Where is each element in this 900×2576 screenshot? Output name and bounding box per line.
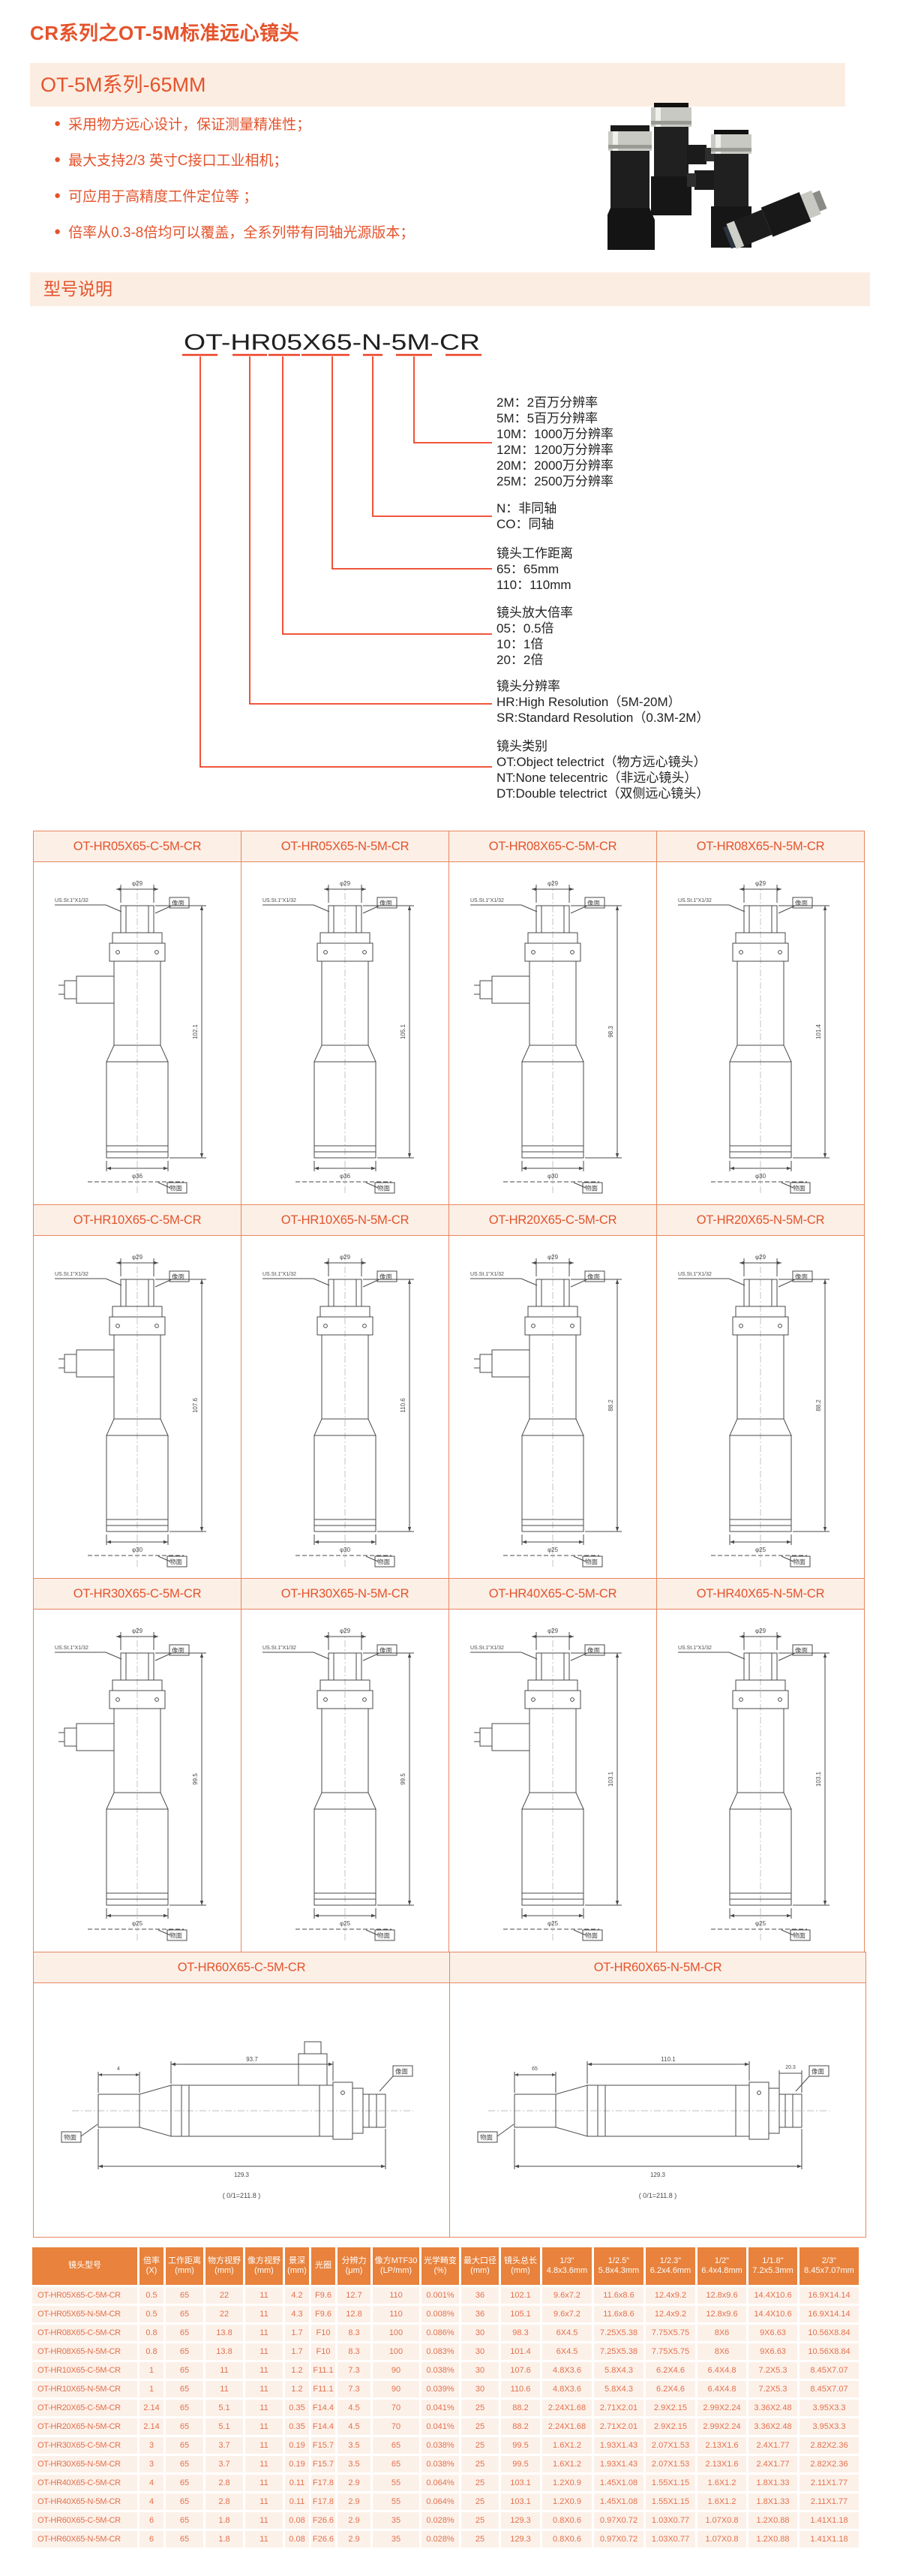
drawing-cell: φ29 US.St.1"X1/32 像面 φ30 101.4 物面 — [656, 861, 865, 1205]
spec-value-cell: 1.6X1.2 — [697, 2493, 746, 2510]
spec-header-cell: 1/3" 4.8x3.6mm — [542, 2247, 592, 2285]
spec-value-cell: 6.4X4.8 — [697, 2362, 746, 2379]
spec-value-cell: 65 — [373, 2437, 419, 2454]
spec-value-cell: 88.2 — [501, 2400, 540, 2416]
svg-text:US.St.1"X1/32: US.St.1"X1/32 — [262, 1646, 296, 1651]
spec-value-cell: 25 — [461, 2418, 499, 2435]
svg-text:φ29: φ29 — [755, 1628, 766, 1634]
spec-header-cell: 分辨力 (μm) — [337, 2247, 370, 2285]
spec-value-cell: 1.2X0.9 — [542, 2475, 592, 2491]
svg-text:φ29: φ29 — [547, 1254, 559, 1261]
spec-value-cell: 90 — [373, 2362, 419, 2379]
spec-value-cell: 25 — [461, 2437, 499, 2454]
drawing-title: OT-HR05X65-C-5M-CR — [33, 831, 241, 862]
spec-value-cell: 0.97X0.72 — [594, 2512, 643, 2529]
spec-value-cell: 1.2 — [285, 2362, 309, 2379]
spec-value-cell: 7.2X5.3 — [748, 2362, 797, 2379]
spec-value-cell: 10.56X8.84 — [799, 2343, 859, 2360]
model-callout-group: 镜头类别OT:Object telectrict（物方远心镜头）NT:None … — [496, 738, 709, 801]
lens-drawing: φ29 US.St.1"X1/32 像面 φ25 103.1 物面 — [449, 1610, 656, 1952]
feature-item: ●倍率从0.3-8倍均可以覆盖，全系列带有同轴光源版本； — [54, 213, 414, 249]
drawing-cell: φ29 US.St.1"X1/32 像面 φ25 99.5 物面 — [241, 1609, 449, 1952]
lens-drawing: φ29 US.St.1"X1/32 像面 φ25 103.1 物面 — [657, 1610, 864, 1952]
drawing-title-row: OT-HR05X65-C-5M-CROT-HR05X65-N-5M-CROT-H… — [33, 831, 868, 862]
spec-value-cell: 65 — [166, 2287, 203, 2304]
spec-value-cell: 65 — [166, 2362, 203, 2379]
spec-value-cell: 30 — [461, 2325, 499, 2341]
spec-value-cell: 7.25X5.38 — [594, 2343, 643, 2360]
callout-line: CO：同轴 — [496, 516, 556, 532]
spec-value-cell: 102.1 — [501, 2287, 540, 2304]
spec-value-cell: 65 — [166, 2418, 203, 2435]
svg-text:φ30: φ30 — [755, 1173, 766, 1180]
datasheet-page: CR系列之OT-5M标准远心镜头 OT-5M系列-65MM ●采用物方远心设计，… — [0, 0, 900, 2576]
spec-value-cell: 12.4x9.2 — [646, 2287, 695, 2304]
spec-value-cell: F15.7 — [311, 2456, 335, 2472]
svg-text:物面: 物面 — [480, 2134, 493, 2142]
svg-text:物面: 物面 — [377, 1932, 391, 1940]
svg-text:像面: 像面 — [379, 900, 393, 907]
spec-value-cell: 1.6X1.2 — [542, 2456, 592, 2472]
svg-text:US.St.1"X1/32: US.St.1"X1/32 — [262, 1272, 296, 1277]
lens-photo-left — [607, 125, 655, 250]
svg-text:105.1: 105.1 — [400, 1023, 406, 1039]
spec-value-cell: 5.8X4.3 — [594, 2362, 643, 2379]
spec-value-cell: 65 — [166, 2512, 203, 2529]
spec-value-cell: 2.82X2.36 — [799, 2437, 859, 2454]
svg-text:US.St.1"X1/32: US.St.1"X1/32 — [678, 1272, 712, 1277]
spec-value-cell: 107.6 — [501, 2362, 540, 2379]
spec-value-cell: 65 — [166, 2381, 203, 2397]
spec-value-cell: 2.13X1.6 — [697, 2456, 746, 2472]
spec-value-cell: 1.03X0.77 — [646, 2512, 695, 2529]
svg-text:US.St.1"X1/32: US.St.1"X1/32 — [678, 898, 712, 903]
callout-line: 10：1倍 — [496, 636, 573, 652]
spec-value-cell: 11 — [245, 2400, 283, 2416]
drawing-cell: φ29 US.St.1"X1/32 像面 φ25 103.1 物面 — [448, 1609, 657, 1952]
svg-text:φ25: φ25 — [547, 1920, 559, 1927]
spec-model-cell: OT-HR20X65-C-5M-CR — [32, 2400, 137, 2416]
spec-value-cell: 2.71X2.01 — [594, 2400, 643, 2416]
drawings-grid: OT-HR05X65-C-5M-CROT-HR05X65-N-5M-CROT-H… — [33, 831, 868, 2238]
spec-value-cell: 36 — [461, 2287, 499, 2304]
spec-value-cell: 110 — [373, 2287, 419, 2304]
spec-value-cell: 11 — [245, 2362, 283, 2379]
spec-value-cell: 1.7 — [285, 2325, 309, 2341]
drawing-cell: 93.7 4 129.3 ( 0/1=211.8 ) 像面 物面 — [33, 1982, 450, 2238]
svg-text:20.3: 20.3 — [785, 2065, 796, 2070]
spec-model-cell: OT-HR10X65-N-5M-CR — [32, 2381, 137, 2397]
spec-value-cell: 0.008% — [421, 2306, 459, 2322]
spec-value-cell: 22 — [205, 2306, 243, 2322]
svg-text:物面: 物面 — [793, 1559, 806, 1566]
spec-header-cell: 最大口径 (mm) — [461, 2247, 499, 2285]
spec-value-cell: 11 — [245, 2475, 283, 2491]
spec-value-cell: 1.93X1.43 — [594, 2456, 643, 2472]
spec-value-cell: 2.71X2.01 — [594, 2418, 643, 2435]
spec-value-cell: 35 — [373, 2531, 419, 2547]
lens-drawing: φ29 US.St.1"X1/32 像面 φ36 105.1 物面 — [241, 862, 448, 1204]
spec-header-cell: 像方MTF30 (LP/mm) — [373, 2247, 419, 2285]
spec-value-cell: 1.7 — [285, 2343, 309, 2360]
spec-header-cell: 光圈 — [311, 2247, 335, 2285]
svg-text:物面: 物面 — [377, 1559, 391, 1566]
spec-value-cell: 2.9 — [337, 2512, 370, 2529]
drawing-row: φ29 US.St.1"X1/32 像面 φ25 99.5 物面 — [33, 1609, 868, 1952]
series-badge-label: OT-5M系列-65MM — [40, 74, 206, 96]
drawing-title: OT-HR08X65-N-5M-CR — [656, 831, 865, 862]
drawing-cell: φ29 US.St.1"X1/32 像面 φ36 105.1 物面 — [241, 861, 449, 1205]
svg-text:像面: 像面 — [172, 900, 185, 907]
svg-text:101.4: 101.4 — [815, 1023, 822, 1039]
drawing-cell: φ29 US.St.1"X1/32 像面 φ36 102.1 物面 — [33, 861, 241, 1205]
feature-text: 倍率从0.3-8倍均可以覆盖，全系列带有同轴光源版本； — [68, 221, 414, 242]
callout-line: 2M：2百万分辨率 — [496, 395, 613, 410]
spec-value-cell: 11 — [245, 2343, 283, 2360]
spec-value-cell: 1.2X0.88 — [748, 2512, 797, 2529]
svg-text:US.St.1"X1/32: US.St.1"X1/32 — [470, 1646, 504, 1651]
spec-value-cell: 11 — [245, 2456, 283, 2472]
svg-text:物面: 物面 — [169, 1559, 183, 1566]
spec-value-cell: 3.5 — [337, 2456, 370, 2472]
spec-value-cell: 0.086% — [421, 2325, 459, 2341]
spec-value-cell: 9.6x7.2 — [542, 2287, 592, 2304]
svg-text:像面: 像面 — [172, 1273, 185, 1281]
bullet-icon: ● — [54, 226, 61, 237]
svg-text:像面: 像面 — [795, 900, 808, 907]
callout-heading: 镜头工作距离 — [496, 546, 573, 561]
spec-model-cell: OT-HR05X65-C-5M-CR — [32, 2287, 137, 2304]
spec-value-cell: 1.8X1.33 — [748, 2475, 797, 2491]
spec-value-cell: 30 — [461, 2343, 499, 2360]
drawing-cell: 110.1 65 20.3 129.3 ( 0/1=211.8 ) 像面 物面 — [449, 1982, 866, 2238]
spec-value-cell: 2.07X1.53 — [646, 2437, 695, 2454]
svg-text:φ29: φ29 — [132, 1254, 143, 1261]
spec-header-cell: 光学畸变 (%) — [421, 2247, 459, 2285]
callout-line: 20M：2000万分辨率 — [496, 458, 613, 473]
spec-value-cell: 8X6 — [697, 2325, 746, 2341]
spec-value-cell: 25 — [461, 2400, 499, 2416]
spec-value-cell: 2.24X1.68 — [542, 2418, 592, 2435]
svg-text:102.1: 102.1 — [192, 1023, 199, 1039]
bullet-icon: ● — [54, 190, 61, 201]
spec-value-cell: 0.028% — [421, 2512, 459, 2529]
callout-heading: 镜头分辨率 — [496, 678, 709, 694]
lens-drawing: φ29 US.St.1"X1/32 像面 φ25 99.5 物面 — [241, 1610, 448, 1952]
spec-value-cell: 100 — [373, 2343, 419, 2360]
svg-text:( 0/1=211.8 ): ( 0/1=211.8 ) — [639, 2192, 677, 2199]
spec-value-cell: 14.4X10.6 — [748, 2306, 797, 2322]
spec-value-cell: 101.4 — [501, 2343, 540, 2360]
spec-value-cell: 55 — [373, 2493, 419, 2510]
model-callout-lines: OT-HR05X65-N-5M-CR — [0, 308, 900, 833]
spec-value-cell: 3.7 — [205, 2437, 243, 2454]
spec-value-cell: 3.95X3.3 — [799, 2400, 859, 2416]
svg-text:像面: 像面 — [795, 1647, 808, 1655]
spec-value-cell: 13.8 — [205, 2343, 243, 2360]
spec-value-cell: 65 — [373, 2456, 419, 2472]
spec-value-cell: 1.45X1.08 — [594, 2475, 643, 2491]
svg-text:US.St.1"X1/32: US.St.1"X1/32 — [262, 898, 296, 903]
spec-value-cell: 25 — [461, 2493, 499, 2510]
spec-value-cell: 65 — [166, 2400, 203, 2416]
svg-text:物面: 物面 — [585, 1559, 598, 1566]
spec-value-cell: 4 — [139, 2493, 163, 2510]
spec-value-cell: 103.1 — [501, 2475, 540, 2491]
spec-value-cell: 1.41X1.18 — [799, 2531, 859, 2547]
spec-value-cell: 11 — [245, 2381, 283, 2397]
svg-text:φ29: φ29 — [547, 1628, 559, 1634]
spec-header-cell: 像方视野 (mm) — [245, 2247, 283, 2285]
spec-value-cell: 1.2X0.9 — [542, 2493, 592, 2510]
callout-line: 25M：2500万分辨率 — [496, 473, 613, 489]
svg-text:φ25: φ25 — [755, 1920, 766, 1927]
drawing-title: OT-HR40X65-C-5M-CR — [448, 1578, 657, 1610]
lens-drawing: φ29 US.St.1"X1/32 像面 φ30 107.6 物面 — [34, 1236, 241, 1578]
svg-text:φ29: φ29 — [340, 880, 351, 887]
spec-value-cell: 2.4X1.77 — [748, 2456, 797, 2472]
spec-value-cell: 2.11X1.77 — [799, 2493, 859, 2510]
spec-value-cell: 1.41X1.18 — [799, 2512, 859, 2529]
svg-text:4: 4 — [117, 2067, 120, 2072]
model-callout-group: 镜头工作距离65：65mm110：110mm — [496, 546, 573, 593]
spec-model-cell: OT-HR40X65-C-5M-CR — [32, 2475, 137, 2491]
svg-text:像面: 像面 — [587, 1647, 601, 1655]
spec-value-cell: 1.45X1.08 — [594, 2493, 643, 2510]
feature-text: 可应用于高精度工件定位等 ； — [68, 185, 257, 206]
spec-value-cell: 7.2X5.3 — [748, 2381, 797, 2397]
spec-header-cell: 物方视野 (mm) — [205, 2247, 243, 2285]
spec-value-cell: 30 — [461, 2362, 499, 2379]
spec-value-cell: 2.11X1.77 — [799, 2475, 859, 2491]
svg-text:像面: 像面 — [587, 1273, 601, 1281]
spec-value-cell: 2.4X1.77 — [748, 2437, 797, 2454]
callout-line: NT:None telecentric（非远心镜头） — [496, 770, 709, 786]
spec-value-cell: 16.9X14.14 — [799, 2306, 859, 2322]
callout-line: 110：110mm — [496, 577, 573, 593]
svg-text:φ25: φ25 — [132, 1920, 143, 1927]
drawing-title-row: OT-HR30X65-C-5M-CROT-HR30X65-N-5M-CROT-H… — [33, 1578, 868, 1610]
spec-value-cell: 4.3 — [285, 2306, 309, 2322]
model-section-badge: 型号说明 — [30, 272, 870, 306]
spec-value-cell: 0.8X0.6 — [542, 2512, 592, 2529]
drawing-cell: φ29 US.St.1"X1/32 像面 φ30 110.6 物面 — [241, 1235, 449, 1579]
spec-value-cell: 0.038% — [421, 2456, 459, 2472]
drawing-title: OT-HR10X65-C-5M-CR — [33, 1204, 241, 1236]
spec-value-cell: F17.8 — [311, 2475, 335, 2491]
spec-value-cell: 9X6.63 — [748, 2343, 797, 2360]
spec-value-cell: 0.064% — [421, 2493, 459, 2510]
svg-text:φ30: φ30 — [132, 1547, 143, 1553]
drawing-title: OT-HR40X65-N-5M-CR — [656, 1578, 865, 1610]
svg-text:107.6: 107.6 — [192, 1397, 199, 1413]
spec-value-cell: 25 — [461, 2475, 499, 2491]
svg-text:物面: 物面 — [793, 1932, 806, 1940]
drawing-cell: φ29 US.St.1"X1/32 像面 φ30 98.3 物面 — [448, 861, 657, 1205]
spec-value-cell: 1.93X1.43 — [594, 2437, 643, 2454]
spec-value-cell: 2.13X1.6 — [697, 2437, 746, 2454]
lens-drawing: φ29 US.St.1"X1/32 像面 φ25 99.5 物面 — [34, 1610, 241, 1952]
model-callout-group: 镜头分辨率HR:High Resolution（5M-20M）SR:Standa… — [496, 678, 709, 726]
svg-text:像面: 像面 — [795, 1273, 808, 1281]
spec-value-cell: 3.5 — [337, 2437, 370, 2454]
callout-line: SR:Standard Resolution（0.3M-2M） — [496, 710, 709, 726]
svg-text:φ25: φ25 — [547, 1547, 559, 1553]
drawing-cell: φ29 US.St.1"X1/32 像面 φ25 88.2 物面 — [448, 1235, 657, 1579]
svg-text:88.2: 88.2 — [607, 1399, 614, 1411]
spec-value-cell: 2.8 — [205, 2493, 243, 2510]
callout-line: 12M：1200万分辨率 — [496, 442, 613, 458]
spec-value-cell: 2.07X1.53 — [646, 2456, 695, 2472]
spec-value-cell: 7.75X5.75 — [646, 2325, 695, 2341]
spec-value-cell: 0.5 — [139, 2287, 163, 2304]
spec-value-cell: 11 — [245, 2531, 283, 2547]
spec-value-cell: 0.041% — [421, 2418, 459, 2435]
spec-value-cell: 4.8X3.6 — [542, 2362, 592, 2379]
spec-header-cell: 倍率 (X) — [139, 2247, 163, 2285]
spec-value-cell: 0.038% — [421, 2437, 459, 2454]
spec-value-cell: 5.1 — [205, 2418, 243, 2435]
svg-text:像面: 像面 — [172, 1647, 185, 1655]
callout-heading: 镜头放大倍率 — [496, 605, 573, 621]
spec-value-cell: 1.8 — [205, 2531, 243, 2547]
svg-text:像面: 像面 — [379, 1273, 393, 1281]
lens-drawing: 93.7 4 129.3 ( 0/1=211.8 ) 像面 物面 — [34, 1983, 448, 2237]
spec-value-cell: 3.95X3.3 — [799, 2418, 859, 2435]
spec-value-cell: 0.001% — [421, 2287, 459, 2304]
svg-text:φ30: φ30 — [547, 1173, 559, 1180]
spec-value-cell: 0.08 — [285, 2531, 309, 2547]
spec-value-cell: 3 — [139, 2437, 163, 2454]
drawing-title: OT-HR20X65-N-5M-CR — [656, 1204, 865, 1236]
svg-text:φ36: φ36 — [340, 1173, 351, 1180]
product-photo — [607, 86, 855, 255]
lens-drawing: φ29 US.St.1"X1/32 像面 φ30 101.4 物面 — [657, 862, 864, 1204]
spec-header-cell: 1/2" 6.4x4.8mm — [697, 2247, 746, 2285]
feature-item: ●最大支持2/3 英寸C接口工业相机； — [54, 141, 414, 177]
spec-value-cell: 99.5 — [501, 2456, 540, 2472]
spec-value-cell: 65 — [166, 2437, 203, 2454]
spec-value-cell: 12.4x9.2 — [646, 2306, 695, 2322]
spec-value-cell: 11 — [205, 2362, 243, 2379]
spec-value-cell: 11 — [245, 2306, 283, 2322]
spec-value-cell: 36 — [461, 2306, 499, 2322]
spec-value-cell: 6X4.5 — [542, 2325, 592, 2341]
drawing-title: OT-HR30X65-N-5M-CR — [241, 1578, 449, 1610]
spec-value-cell: 2.8 — [205, 2475, 243, 2491]
svg-text:φ25: φ25 — [340, 1920, 351, 1927]
svg-text:像面: 像面 — [587, 900, 601, 907]
svg-text:像面: 像面 — [811, 2068, 825, 2076]
spec-value-cell: 1.55X1.15 — [646, 2475, 695, 2491]
svg-text:129.3: 129.3 — [234, 2172, 250, 2178]
model-number: OT-HR05X65-N-5M-CR — [184, 330, 480, 355]
spec-value-cell: 90 — [373, 2381, 419, 2397]
spec-value-cell: 88.2 — [501, 2418, 540, 2435]
svg-text:φ36: φ36 — [132, 1173, 143, 1180]
drawing-title: OT-HR30X65-C-5M-CR — [33, 1578, 241, 1610]
spec-value-cell: 35 — [373, 2512, 419, 2529]
spec-value-cell: F14.4 — [311, 2418, 335, 2435]
spec-value-cell: 30 — [461, 2381, 499, 2397]
spec-value-cell: F9.6 — [311, 2306, 335, 2322]
spec-value-cell: 11.6x8.6 — [594, 2287, 643, 2304]
spec-value-cell: 103.1 — [501, 2493, 540, 2510]
callout-line: OT:Object telectrict（物方远心镜头） — [496, 754, 709, 770]
spec-value-cell: 65 — [166, 2475, 203, 2491]
spec-value-cell: 11 — [245, 2493, 283, 2510]
svg-text:物面: 物面 — [585, 1932, 598, 1940]
spec-value-cell: 0.083% — [421, 2343, 459, 2360]
svg-text:( 0/1=211.8 ): ( 0/1=211.8 ) — [223, 2192, 261, 2199]
spec-value-cell: 0.11 — [285, 2493, 309, 2510]
svg-text:物面: 物面 — [793, 1185, 806, 1192]
feature-item: ●可应用于高精度工件定位等 ； — [54, 177, 414, 213]
drawing-row: φ29 US.St.1"X1/32 像面 φ36 102.1 物面 — [33, 861, 868, 1205]
spec-value-cell: 11 — [245, 2512, 283, 2529]
spec-model-cell: OT-HR30X65-N-5M-CR — [32, 2456, 137, 2472]
lens-photo-middle — [651, 103, 714, 215]
spec-value-cell: 4.8X3.6 — [542, 2381, 592, 2397]
svg-text:物面: 物面 — [64, 2134, 77, 2142]
svg-text:US.St.1"X1/32: US.St.1"X1/32 — [678, 1646, 712, 1651]
spec-value-cell: 2.99X2.24 — [697, 2418, 746, 2435]
spec-value-cell: F17.8 — [311, 2493, 335, 2510]
spec-value-cell: 6 — [139, 2512, 163, 2529]
spec-value-cell: 1.2X0.88 — [748, 2531, 797, 2547]
spec-header-cell: 2/3" 8.45x7.07mm — [799, 2247, 859, 2285]
spec-value-cell: 65 — [166, 2343, 203, 2360]
spec-value-cell: 0.19 — [285, 2437, 309, 2454]
svg-text:φ29: φ29 — [755, 880, 766, 887]
svg-text:φ29: φ29 — [340, 1254, 351, 1261]
model-callout-group: 2M：2百万分辨率5M：5百万分辨率10M：1000万分辨率12M：1200万分… — [496, 395, 613, 489]
callout-line: HR:High Resolution（5M-20M） — [496, 694, 709, 710]
spec-value-cell: 7.3 — [337, 2362, 370, 2379]
spec-value-cell: 7.25X5.38 — [594, 2325, 643, 2341]
spec-header-cell: 景深 (mm) — [285, 2247, 309, 2285]
lens-drawing: φ29 US.St.1"X1/32 像面 φ30 110.6 物面 — [241, 1236, 448, 1578]
spec-value-cell: 1.8 — [205, 2512, 243, 2529]
feature-text: 采用物方远心设计，保证测量精准性； — [68, 113, 310, 134]
page-title: CR系列之OT-5M标准远心镜头 — [30, 18, 299, 46]
drawing-title: OT-HR05X65-N-5M-CR — [241, 831, 449, 862]
feature-text: 最大支持2/3 英寸C接口工业相机； — [68, 149, 287, 170]
spec-value-cell: 13.8 — [205, 2325, 243, 2341]
spec-value-cell: F11.1 — [311, 2362, 335, 2379]
spec-value-cell: 14.4X10.6 — [748, 2287, 797, 2304]
spec-value-cell: 98.3 — [501, 2325, 540, 2341]
spec-value-cell: F14.4 — [311, 2400, 335, 2416]
spec-value-cell: 9X6.63 — [748, 2325, 797, 2341]
feature-list: ●采用物方远心设计，保证测量精准性；●最大支持2/3 英寸C接口工业相机；●可应… — [54, 105, 414, 249]
spec-header-cell: 镜头总长 (mm) — [501, 2247, 540, 2285]
drawing-title: OT-HR60X65-C-5M-CR — [33, 1952, 450, 1983]
spec-value-cell: F11.1 — [311, 2381, 335, 2397]
spec-value-cell: 16.9X14.14 — [799, 2287, 859, 2304]
spec-value-cell: F9.6 — [311, 2287, 335, 2304]
spec-value-cell: 2.9 — [337, 2531, 370, 2547]
svg-text:88.2: 88.2 — [815, 1399, 822, 1411]
spec-value-cell: 65 — [166, 2531, 203, 2547]
spec-value-cell: 105.1 — [501, 2306, 540, 2322]
svg-text:99.5: 99.5 — [192, 1773, 199, 1785]
feature-item: ●采用物方远心设计，保证测量精准性； — [54, 105, 414, 141]
model-diagram: OT-HR05X65-N-5M-CR 2M：2百万分辨率5M：5百万分辨率10M… — [0, 308, 900, 833]
spec-value-cell: 1.07X0.8 — [697, 2531, 746, 2547]
svg-text:φ29: φ29 — [132, 1628, 143, 1634]
bullet-icon: ● — [54, 154, 61, 165]
